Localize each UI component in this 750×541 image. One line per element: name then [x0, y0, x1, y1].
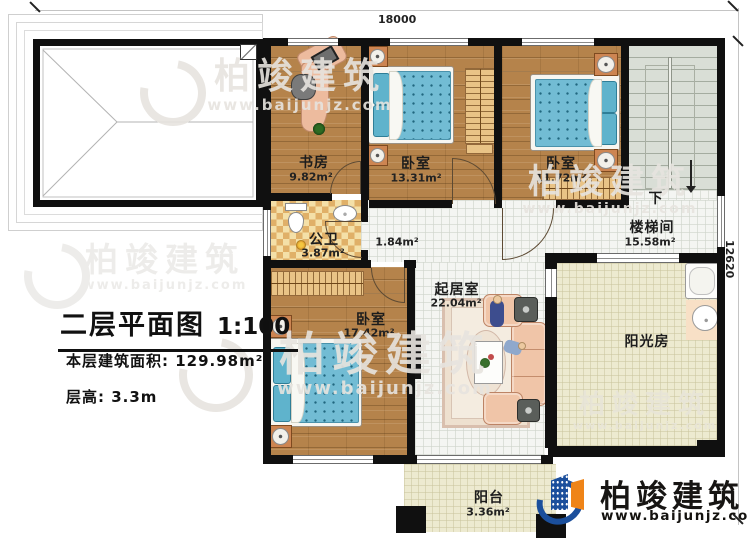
window — [263, 210, 271, 256]
room-area-bedroom-right: 11.72m² — [535, 172, 586, 185]
watermark-url: www.baijunjz.com — [30, 278, 300, 293]
wall — [494, 45, 502, 208]
wall — [545, 253, 597, 263]
person-figure — [518, 342, 526, 350]
nightstand-lamp — [367, 145, 388, 166]
company-logo — [536, 472, 596, 530]
room-label-stairwell: 楼梯间 — [630, 217, 675, 237]
wall — [697, 440, 725, 457]
toilet-icon — [285, 203, 307, 211]
room-area-bathroom: 3.87m² — [301, 247, 344, 260]
window — [288, 38, 338, 46]
room-label-sunroom: 阳光房 — [625, 331, 670, 351]
nightstand-lamp — [594, 53, 618, 76]
bathtub-icon — [689, 267, 715, 295]
wall — [717, 247, 725, 457]
double-bed — [368, 66, 454, 144]
dimension-line-top — [35, 10, 737, 11]
wall — [407, 260, 415, 464]
nightstand-lamp — [269, 425, 292, 448]
wash-basin-icon — [692, 305, 718, 331]
wall — [545, 297, 557, 448]
nightstand-lamp — [594, 149, 618, 172]
logo-building-icon — [571, 479, 584, 510]
roof-hip-lines — [40, 46, 256, 200]
floor-height-line: 层高: 3.3m — [66, 386, 157, 407]
watermark-text: 柏竣建筑 — [30, 243, 300, 278]
plant-icon — [312, 122, 326, 136]
room-area-stairwell: 15.58m² — [624, 236, 675, 249]
room-area-study: 9.82m² — [289, 171, 332, 184]
wall — [621, 45, 629, 208]
window — [545, 269, 557, 297]
company-website: www.baijunjz.com — [601, 508, 750, 524]
room-label-bedroom-right: 卧室 — [546, 153, 576, 173]
room-area-bedroom-top: 13.31m² — [390, 172, 441, 185]
room-label-bedroom-top: 卧室 — [401, 153, 431, 173]
wall — [556, 200, 628, 208]
room-area-balcony: 3.36m² — [466, 506, 509, 519]
nightstand-lamp — [367, 46, 388, 67]
bench — [466, 144, 493, 154]
floorplan-canvas: 18000 12620 — [0, 0, 750, 541]
office-chair-icon — [291, 74, 316, 100]
plan-scale: 1:100 — [217, 314, 290, 340]
wall — [369, 200, 452, 208]
wall — [361, 45, 369, 200]
dimension-width-label: 18000 — [378, 13, 416, 26]
wardrobe — [270, 271, 364, 296]
wardrobe — [465, 68, 496, 144]
side-table — [517, 399, 540, 422]
side-table — [514, 297, 538, 322]
wall — [679, 253, 725, 263]
plan-title: 二层平面图 — [60, 303, 205, 342]
roof-notch — [240, 44, 257, 60]
wash-basin-icon — [333, 205, 357, 222]
stair-down-arrow — [690, 160, 692, 188]
balcony-slider-window — [417, 455, 541, 464]
stair-down-arrowhead — [686, 186, 696, 193]
room-area-hallway: 1.84m² — [375, 236, 418, 249]
double-bed — [530, 74, 620, 151]
window — [390, 38, 468, 46]
wall — [361, 200, 368, 222]
window — [522, 38, 594, 46]
stair-direction-label: 下 — [649, 188, 664, 208]
wall — [717, 38, 725, 196]
room-area-bedroom-left: 17.42m² — [343, 327, 394, 340]
stair-rail — [668, 57, 672, 189]
room-area-living: 22.04m² — [430, 297, 481, 310]
balcony-post — [396, 506, 426, 533]
window — [293, 455, 373, 464]
dimension-line-right — [738, 8, 739, 525]
person-figure — [493, 295, 502, 304]
person-figure — [490, 300, 504, 327]
window — [597, 253, 679, 263]
room-label-balcony: 阳台 — [474, 487, 504, 507]
wall — [263, 260, 371, 268]
flower-vase-icon — [488, 354, 494, 360]
title-block: 二层平面图 1:100 — [58, 303, 298, 352]
watermark: 柏竣建筑 www.baijunjz.com — [30, 243, 300, 293]
floor-area-line: 本层建筑面积: 129.98m² — [66, 350, 263, 371]
room-label-study: 书房 — [299, 152, 329, 172]
wall — [263, 193, 332, 201]
window — [717, 196, 725, 247]
